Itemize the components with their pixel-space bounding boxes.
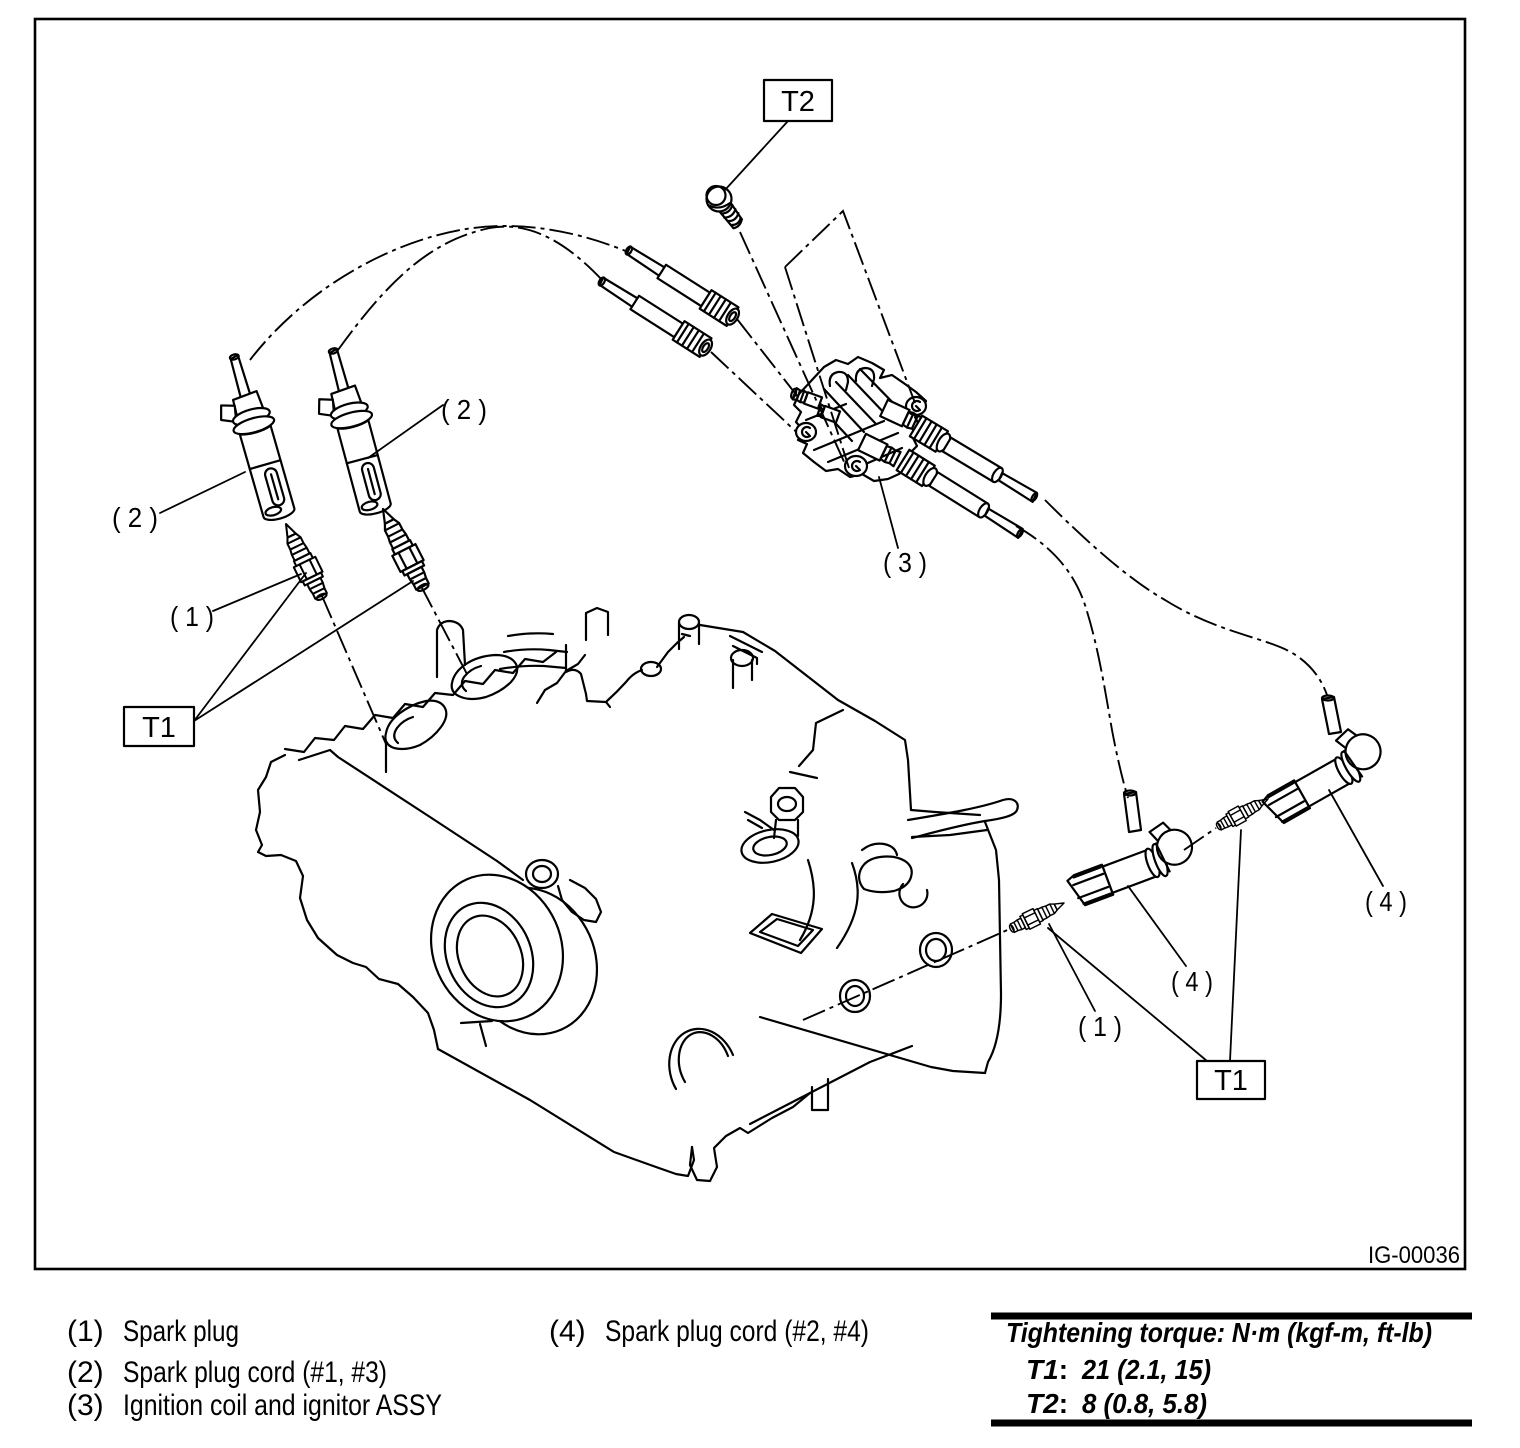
svg-text:T1: T1 [142,712,176,744]
svg-text:( 2 ): ( 2 ) [112,502,158,533]
svg-text:( 3 ): ( 3 ) [883,547,927,578]
svg-text:Spark plug cord (#1, #3): Spark plug cord (#1, #3) [123,1356,387,1389]
svg-text:Spark plug cord (#2, #4): Spark plug cord (#2, #4) [605,1315,869,1348]
svg-text:T1: T1 [1214,1065,1248,1097]
svg-text:( 1 ): ( 1 ) [170,601,214,632]
svg-text:( 1 ): ( 1 ) [1078,1011,1122,1042]
svg-text:(4): (4) [549,1315,586,1348]
svg-text:( 4 ): ( 4 ) [1365,886,1407,917]
svg-text:IG-00036: IG-00036 [1368,1242,1460,1269]
svg-text:(1): (1) [67,1315,104,1348]
svg-text:T1:21 (2.1, 15): T1:21 (2.1, 15) [1026,1354,1211,1385]
svg-text:(2): (2) [67,1356,104,1389]
svg-text:Ignition coil and ignitor ASSY: Ignition coil and ignitor ASSY [123,1389,442,1422]
svg-text:T2: T2 [781,86,815,118]
svg-text:(3): (3) [67,1389,104,1422]
svg-text:T2:8 (0.8, 5.8): T2:8 (0.8, 5.8) [1026,1388,1207,1419]
svg-text:( 2 ): ( 2 ) [441,394,487,425]
svg-text:Tightening torque: N·m (kgf-m,: Tightening torque: N·m (kgf-m, ft-lb) [1006,1317,1432,1348]
svg-text:( 4 ): ( 4 ) [1171,966,1213,997]
svg-text:Spark plug: Spark plug [123,1315,239,1348]
